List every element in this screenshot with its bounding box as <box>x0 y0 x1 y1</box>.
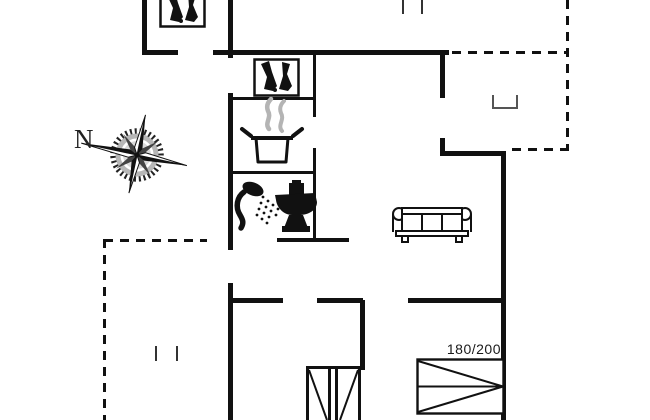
terrace-outline-dashed <box>452 51 568 54</box>
sofa-icon <box>390 201 474 245</box>
terrace-mark <box>176 346 178 361</box>
bunk-bed-icon <box>306 366 362 420</box>
terrace-outline-dashed <box>566 0 569 151</box>
wall-segment <box>231 171 313 174</box>
wall-segment <box>213 50 449 55</box>
toilet-icon <box>272 180 322 234</box>
cropped-line-mark <box>402 0 404 14</box>
bed-size-label: 180/200 <box>441 341 501 357</box>
step-icon <box>492 95 518 109</box>
wall-segment <box>233 298 283 303</box>
floorplan-canvas: N 180/200 <box>0 0 650 420</box>
wall-segment <box>440 138 445 153</box>
compass-north-label: N <box>74 124 94 155</box>
steam-icon <box>280 101 284 131</box>
wall-segment <box>408 298 504 303</box>
wall-segment <box>313 55 316 117</box>
compass-rose-icon <box>72 102 202 210</box>
wall-segment <box>142 0 147 55</box>
cropped-line-mark <box>421 0 423 14</box>
boots-icon <box>253 58 300 97</box>
double-bed-icon <box>416 358 506 416</box>
steam-icon <box>267 99 271 129</box>
terrace-outline-dashed <box>103 239 106 420</box>
terrace-outline-dashed <box>512 148 566 151</box>
wall-segment <box>317 298 363 303</box>
terrace-outline-dashed <box>104 239 207 242</box>
cooking-pot-icon <box>238 96 306 168</box>
wall-segment <box>228 0 233 58</box>
wall-segment <box>360 300 365 370</box>
wall-segment <box>440 151 506 156</box>
wall-segment <box>277 238 349 242</box>
boots-icon <box>159 0 206 28</box>
wall-segment <box>440 53 445 98</box>
terrace-mark <box>155 346 157 361</box>
wall-segment <box>228 283 233 420</box>
wall-segment <box>142 50 178 55</box>
